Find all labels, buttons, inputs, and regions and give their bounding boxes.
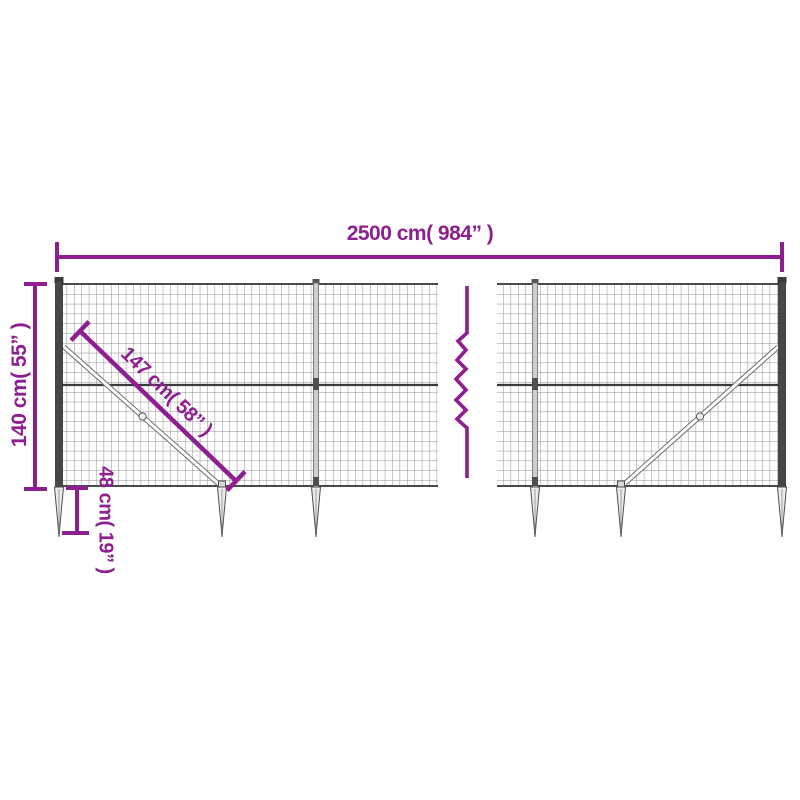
anchor-depth-dimension-label: 48 cm( 19” ) <box>94 466 117 573</box>
width-dimension-label: 2500 cm( 984” ) <box>347 222 494 246</box>
height-dimension-label: 140 cm( 55” ) <box>8 323 32 447</box>
corner-post-left <box>55 277 64 487</box>
mesh-panel-right <box>497 283 786 487</box>
ground-anchor-spikes <box>55 481 787 537</box>
intermediate-post-right-panel <box>532 279 539 487</box>
corner-post-right <box>778 277 787 487</box>
break-symbol <box>456 286 467 478</box>
strut-spike-bracket <box>219 481 226 487</box>
anchor-depth-dimension-line <box>62 488 89 533</box>
fence-illustration <box>0 0 800 800</box>
intermediate-post-left-panel <box>313 279 320 487</box>
fence-dimension-diagram: 2500 cm( 984” ) 140 cm( 55” ) 147 cm( 58… <box>0 0 800 800</box>
strut-connector <box>696 413 703 420</box>
spike-seams <box>59 489 782 532</box>
strut-spike-bracket <box>618 481 625 487</box>
mesh-panel-left <box>56 283 439 487</box>
strut-connector <box>139 413 146 420</box>
width-dimension-line <box>57 242 782 272</box>
